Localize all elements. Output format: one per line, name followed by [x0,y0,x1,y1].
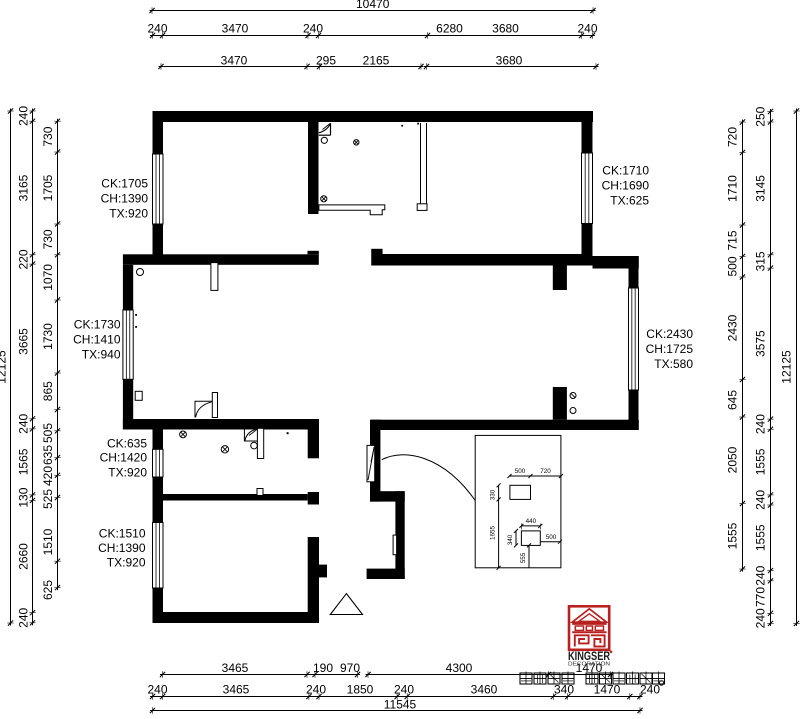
svg-text:CK:1730: CK:1730 [74,318,121,332]
svg-text:240: 240 [17,106,31,126]
svg-text:CH:1420: CH:1420 [100,451,148,465]
svg-text:525: 525 [41,489,55,509]
svg-text:865: 865 [41,381,55,401]
svg-text:730: 730 [41,126,55,146]
svg-text:6280: 6280 [436,22,463,36]
svg-text:240: 240 [394,683,414,697]
svg-text:240: 240 [303,22,323,36]
svg-text:1555: 1555 [726,522,740,549]
svg-text:CK:635: CK:635 [107,436,147,450]
svg-text:DECORATION: DECORATION [568,662,610,668]
svg-text:CH:1390: CH:1390 [101,192,149,206]
svg-text:TX:580: TX:580 [654,357,693,371]
svg-text:CH:1725: CH:1725 [646,342,694,356]
svg-text:240: 240 [754,414,768,434]
svg-text:CH:1690: CH:1690 [602,179,650,193]
svg-text:2660: 2660 [17,543,31,570]
svg-text:500: 500 [546,534,557,541]
svg-text:3145: 3145 [754,175,768,202]
svg-text:730: 730 [41,229,55,249]
svg-text:1510: 1510 [41,528,55,555]
svg-text:420: 420 [41,466,55,486]
svg-text:1730: 1730 [41,323,55,350]
svg-text:12125: 12125 [780,350,794,384]
svg-text:240: 240 [754,608,768,628]
svg-text:2050: 2050 [726,446,740,473]
svg-text:715: 715 [726,230,740,250]
svg-text:CK:1705: CK:1705 [101,177,148,191]
svg-text:720: 720 [540,468,551,475]
svg-text:240: 240 [147,683,167,697]
svg-text:250: 250 [754,106,768,126]
svg-text:3165: 3165 [17,174,31,201]
svg-text:340: 340 [554,683,574,697]
svg-text:970: 970 [340,661,360,675]
svg-text:720: 720 [726,127,740,147]
svg-text:3665: 3665 [17,328,31,355]
svg-text:220: 220 [17,249,31,269]
svg-text:240: 240 [17,413,31,433]
svg-text:505: 505 [41,423,55,443]
svg-text:1710: 1710 [726,175,740,202]
svg-text:500: 500 [515,468,526,475]
svg-text:3680: 3680 [496,54,523,68]
svg-text:240: 240 [577,22,597,36]
svg-text:1470: 1470 [594,683,621,697]
svg-text:3470: 3470 [222,22,249,36]
svg-text:3680: 3680 [492,22,519,36]
svg-text:10470: 10470 [356,0,390,11]
svg-text:1705: 1705 [41,174,55,201]
svg-text:3465: 3465 [223,683,250,697]
svg-text:240: 240 [17,607,31,627]
svg-text:1070: 1070 [41,264,55,291]
svg-text:CK:2430: CK:2430 [646,327,693,341]
svg-text:240: 240 [147,22,167,36]
svg-text:2165: 2165 [363,54,390,68]
svg-text:1555: 1555 [754,448,768,475]
svg-text:CK:1710: CK:1710 [602,164,649,178]
svg-text:330: 330 [490,489,497,500]
svg-text:240: 240 [754,490,768,510]
svg-text:TX:625: TX:625 [610,194,649,208]
svg-text:CH:1410: CH:1410 [73,333,121,347]
svg-text:TX:940: TX:940 [82,348,121,362]
svg-text:240: 240 [754,565,768,585]
svg-text:340: 340 [507,534,514,545]
svg-text:240: 240 [306,683,326,697]
svg-text:3460: 3460 [471,683,498,697]
svg-text:TX:920: TX:920 [108,465,147,479]
svg-text:CH:1390: CH:1390 [98,541,146,555]
svg-text:770: 770 [754,587,768,607]
svg-text:2430: 2430 [726,314,740,341]
svg-text:440: 440 [526,518,537,525]
svg-text:1655: 1655 [490,526,497,541]
svg-text:4300: 4300 [446,661,473,675]
svg-text:645: 645 [726,390,740,410]
svg-text:12125: 12125 [0,350,9,384]
svg-text:3470: 3470 [221,54,248,68]
svg-text:315: 315 [754,251,768,271]
svg-text:500: 500 [726,256,740,276]
svg-text:TX:920: TX:920 [109,207,148,221]
svg-text:190: 190 [313,661,333,675]
svg-text:11545: 11545 [384,698,417,712]
svg-text:1555: 1555 [754,524,768,551]
svg-text:295: 295 [316,54,336,68]
svg-text:3465: 3465 [222,661,249,675]
svg-text:1850: 1850 [347,683,374,697]
svg-text:625: 625 [41,580,55,600]
svg-text:635: 635 [41,445,55,465]
svg-text:555: 555 [520,552,527,563]
svg-text:240: 240 [640,683,660,697]
svg-text:130: 130 [17,487,31,507]
svg-text:1565: 1565 [17,448,31,475]
svg-text:3575: 3575 [754,330,768,357]
svg-text:CK:1510: CK:1510 [99,527,146,541]
svg-text:TX:920: TX:920 [107,556,146,570]
